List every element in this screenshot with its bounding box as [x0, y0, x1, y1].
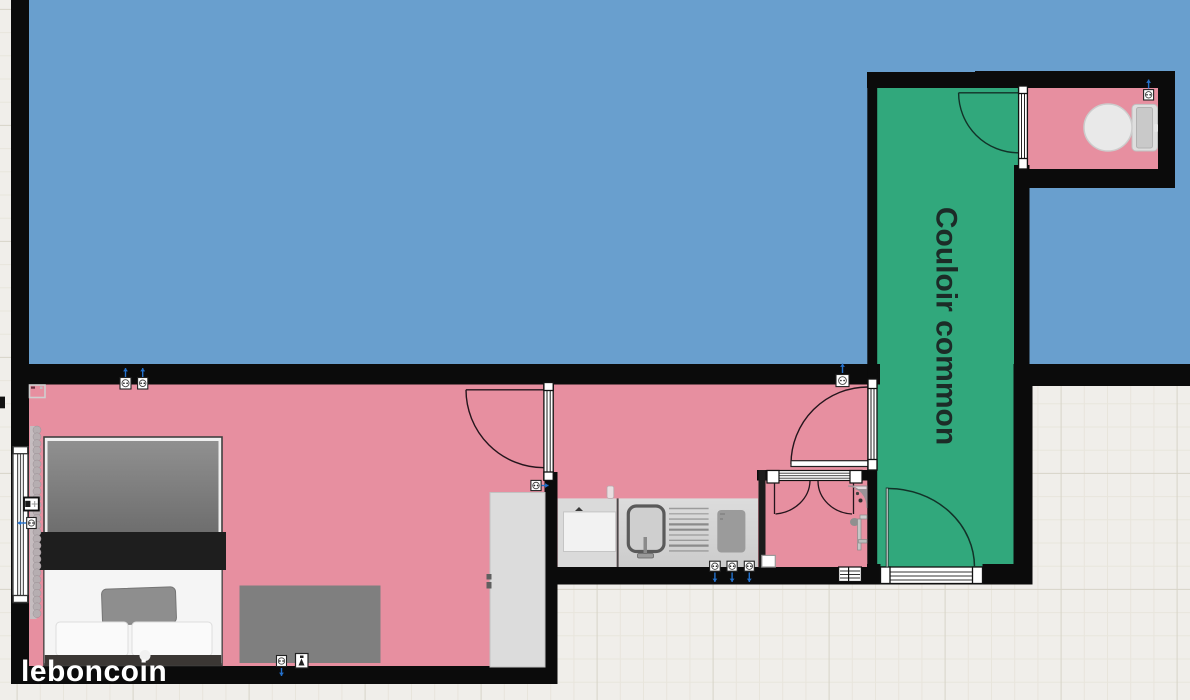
svg-text:Couloir common: Couloir common: [930, 207, 963, 445]
svg-text:leboncoin: leboncoin: [21, 655, 167, 688]
